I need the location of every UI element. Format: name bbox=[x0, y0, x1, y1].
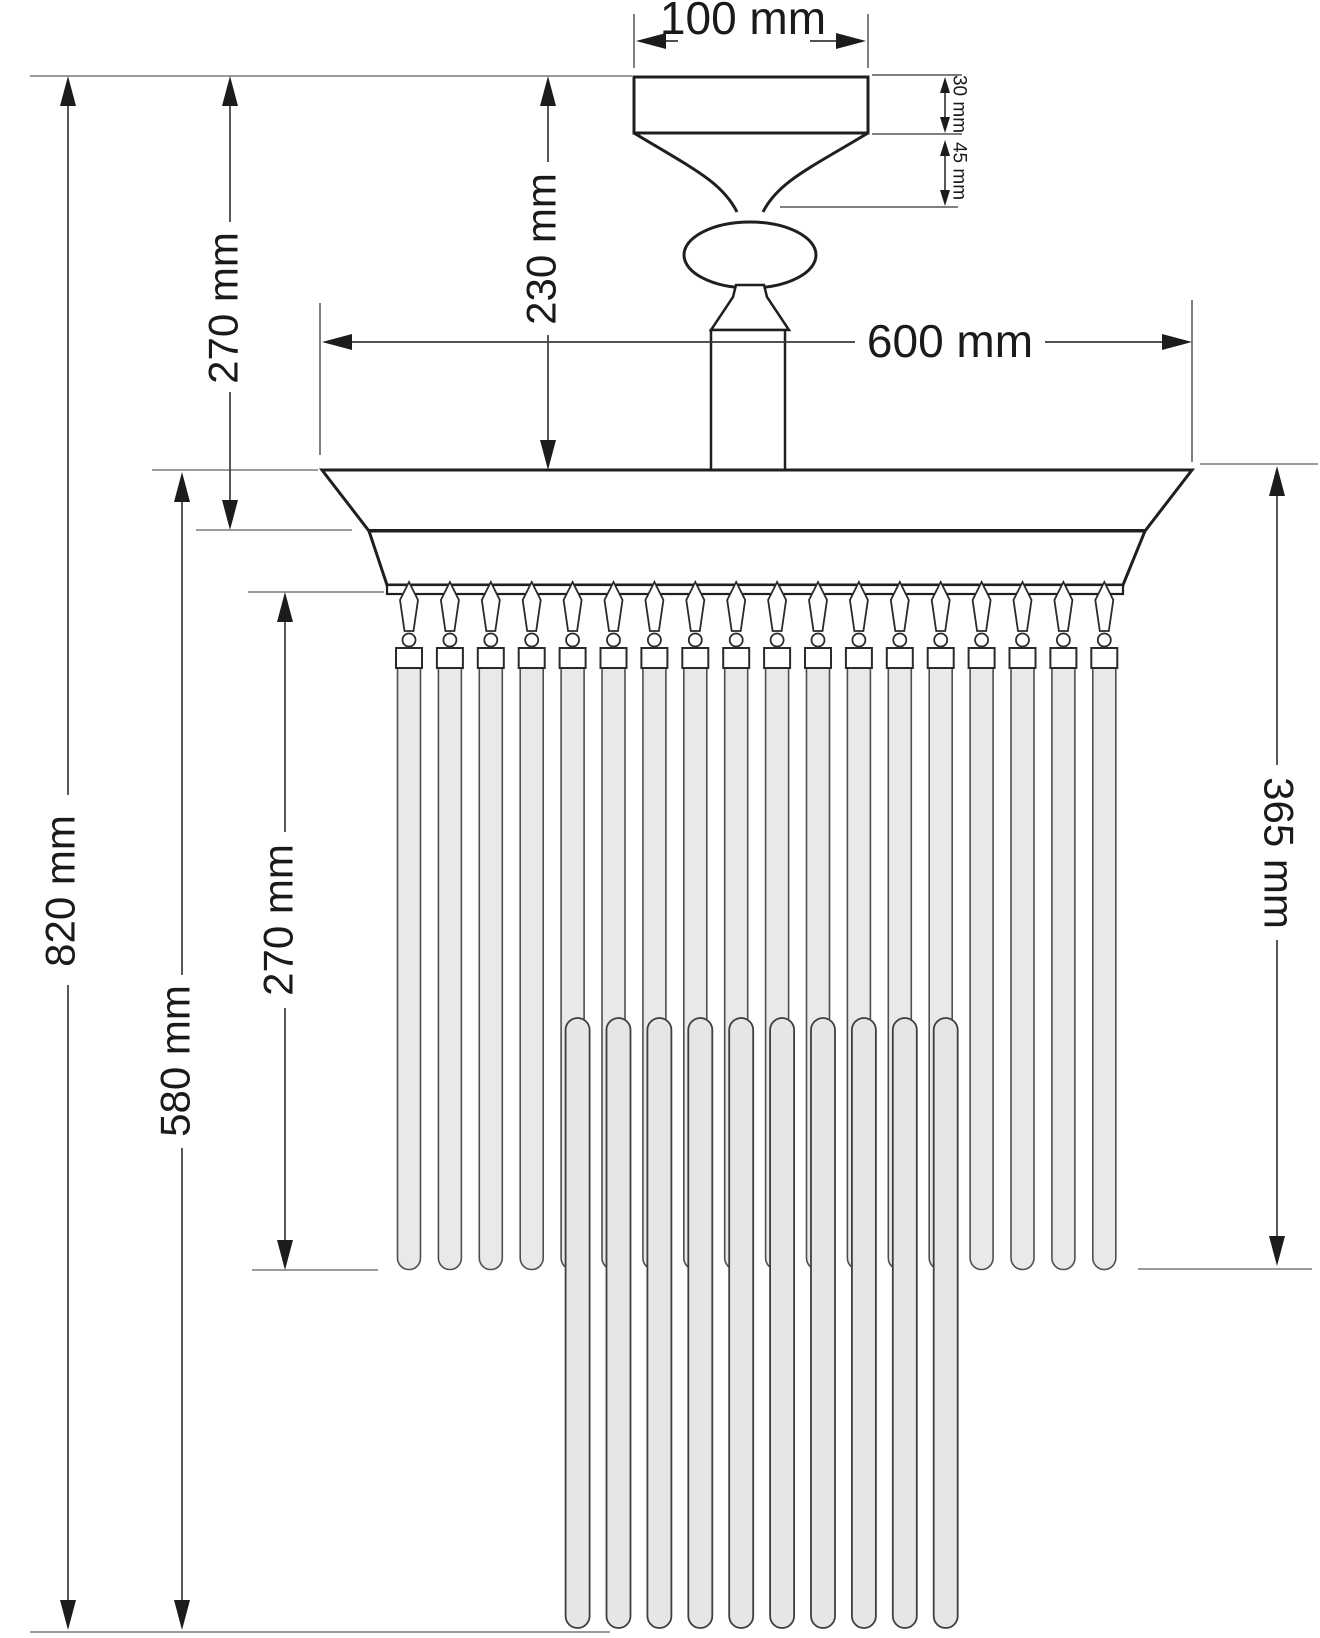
hook-ring bbox=[730, 634, 743, 647]
long-rod bbox=[893, 1018, 917, 1628]
arrowhead-d bbox=[174, 1600, 190, 1630]
arrowhead-u bbox=[60, 76, 76, 106]
fixture bbox=[322, 77, 1192, 594]
arrowhead-u bbox=[540, 76, 556, 106]
label-body-top-to-bottom: 580 mm bbox=[152, 985, 199, 1137]
long-crystal-rods bbox=[566, 1018, 958, 1628]
short-rod bbox=[520, 668, 543, 1270]
rod-cap bbox=[437, 648, 463, 668]
arrowhead-d bbox=[222, 500, 238, 530]
hook-ring bbox=[975, 634, 988, 647]
short-rod bbox=[970, 668, 993, 1270]
ball-ornament bbox=[684, 222, 816, 288]
arrowhead-d bbox=[277, 1240, 293, 1270]
label-body-diameter: 600 mm bbox=[867, 315, 1033, 367]
short-rod bbox=[1093, 668, 1116, 1270]
rod-cap bbox=[764, 648, 790, 668]
rod-cap bbox=[928, 648, 954, 668]
long-rod bbox=[852, 1018, 876, 1628]
long-rod bbox=[811, 1018, 835, 1628]
long-rod bbox=[770, 1018, 794, 1628]
label-ceiling-to-body-top: 230 mm bbox=[518, 173, 565, 325]
long-rod bbox=[729, 1018, 753, 1628]
hook-ring bbox=[443, 634, 456, 647]
hook-ring bbox=[648, 634, 661, 647]
short-rod bbox=[1011, 668, 1034, 1270]
hook-ring bbox=[525, 634, 538, 647]
label-ceiling-to-band: 270 mm bbox=[200, 232, 247, 384]
label-total-height: 820 mm bbox=[37, 815, 84, 967]
rod-cap bbox=[682, 648, 708, 668]
hook-ring bbox=[812, 634, 825, 647]
arrowhead-u bbox=[174, 472, 190, 502]
short-rod bbox=[1052, 668, 1075, 1270]
label-neck-height: 45 mm bbox=[948, 142, 969, 200]
hook-ring bbox=[1098, 634, 1111, 647]
arrowhead-l bbox=[322, 334, 352, 350]
hook-ring bbox=[607, 634, 620, 647]
rim-band bbox=[387, 585, 1123, 594]
long-rod bbox=[647, 1018, 671, 1628]
long-rod bbox=[688, 1018, 712, 1628]
rod-cap bbox=[969, 648, 995, 668]
label-right-side-drop: 365 mm bbox=[1255, 777, 1302, 929]
funnel-right-curve bbox=[763, 133, 868, 212]
rod-cap bbox=[1010, 648, 1036, 668]
arrowhead-r bbox=[836, 33, 866, 49]
hook-ring bbox=[1057, 634, 1070, 647]
arrowhead-u bbox=[222, 76, 238, 106]
rod-cap bbox=[805, 648, 831, 668]
long-rod bbox=[566, 1018, 590, 1628]
hook-ring bbox=[1016, 634, 1029, 647]
hook-ring bbox=[934, 634, 947, 647]
short-rod bbox=[479, 668, 502, 1270]
rod-cap bbox=[641, 648, 667, 668]
funnel-left-curve bbox=[634, 133, 737, 212]
label-canopy-width: 100 mm bbox=[660, 0, 826, 44]
short-rod bbox=[438, 668, 461, 1270]
flared-cone bbox=[711, 285, 789, 330]
hook-ring bbox=[403, 634, 416, 647]
drawing-svg: 100 mm 600 mm 30 mm 45 mm 230 mm 270 mm … bbox=[0, 0, 1320, 1638]
hook-ring bbox=[484, 634, 497, 647]
short-crystal-rods bbox=[398, 668, 1116, 1270]
arrowhead-d bbox=[540, 440, 556, 470]
hook-ring bbox=[852, 634, 865, 647]
label-canopy-height: 30 mm bbox=[948, 75, 969, 133]
long-rod bbox=[934, 1018, 958, 1628]
chandelier-dimension-drawing: 100 mm 600 mm 30 mm 45 mm 230 mm 270 mm … bbox=[0, 0, 1320, 1638]
long-rod bbox=[607, 1018, 631, 1628]
body-upper bbox=[322, 470, 1192, 531]
stem-tube bbox=[711, 330, 785, 470]
rod-cap bbox=[1091, 648, 1117, 668]
rod-caps bbox=[396, 648, 1117, 668]
body-lower bbox=[369, 531, 1145, 585]
hook-ring bbox=[893, 634, 906, 647]
arrowhead-u bbox=[277, 592, 293, 622]
ceiling-canopy bbox=[634, 77, 868, 133]
hook-ring bbox=[566, 634, 579, 647]
rod-cap bbox=[887, 648, 913, 668]
hook-ring bbox=[689, 634, 702, 647]
rod-cap bbox=[1050, 648, 1076, 668]
rod-cap bbox=[560, 648, 586, 668]
arrowhead-u bbox=[1269, 466, 1285, 496]
label-short-rod-drop: 270 mm bbox=[255, 844, 302, 996]
short-rod bbox=[398, 668, 421, 1270]
rod-cap bbox=[396, 648, 422, 668]
rod-cap bbox=[478, 648, 504, 668]
hook-ring bbox=[771, 634, 784, 647]
rod-cap bbox=[846, 648, 872, 668]
arrowhead-r bbox=[1162, 334, 1192, 350]
rod-cap bbox=[519, 648, 545, 668]
arrowhead-d bbox=[1269, 1236, 1285, 1266]
arrowhead-d bbox=[60, 1600, 76, 1630]
rod-cap bbox=[723, 648, 749, 668]
rod-cap bbox=[601, 648, 627, 668]
